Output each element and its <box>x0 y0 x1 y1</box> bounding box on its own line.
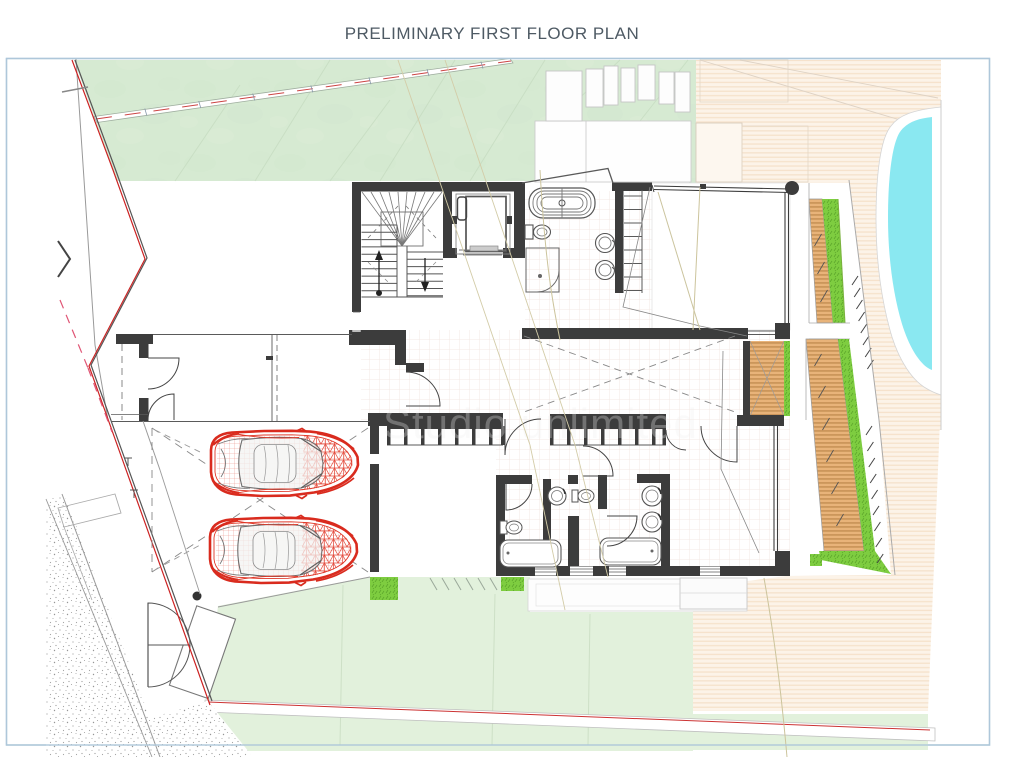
svg-text:Studio unlimited: Studio unlimited <box>383 400 698 447</box>
